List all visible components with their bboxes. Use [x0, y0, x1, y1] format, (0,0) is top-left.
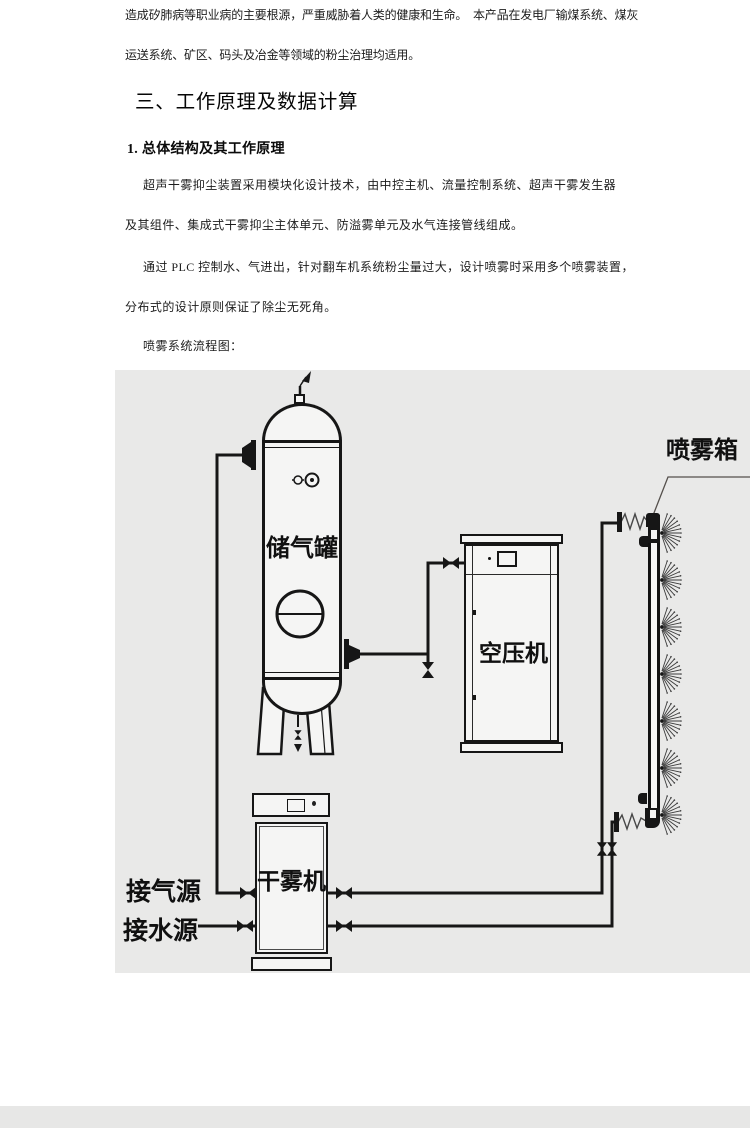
paragraph1-line-2: 及其组件、集成式干雾抑尘主体单元、防溢雾单元及水气连接管线组成。	[125, 216, 523, 233]
tank-weld-line-top	[265, 447, 339, 448]
intro-line-2: 运送系统、矿区、码头及冶金等领域的粉尘治理均适用。	[125, 46, 420, 63]
safety-valve-icon	[295, 371, 311, 403]
section-heading: 三、工作原理及数据计算	[135, 85, 358, 114]
mist-machine-display	[287, 799, 305, 812]
paragraph2-line-1: 通过 PLC 控制水、气进出，针对翻车机系统粉尘量过大，设计喷雾时采用多个喷雾装…	[143, 258, 634, 275]
compressor-divider-line	[466, 574, 557, 575]
spray-bar-bottom-fitting-window	[650, 810, 656, 818]
page-bottom-strip	[0, 1106, 750, 1128]
compressor-indicator-dot	[488, 557, 491, 560]
document-page: { "document": { "intro_lines": [ "造成矽肺病等…	[0, 0, 750, 1128]
intro-line-1: 造成矽肺病等职业病的主要根源，严重威胁着人类的健康和生命。 本产品在发电厂输煤系…	[125, 6, 638, 23]
spray-bar-top-collar-window	[651, 530, 657, 539]
spray-bar	[648, 515, 660, 810]
spray-bar-side-port-bottom	[638, 793, 647, 804]
water-source-label: 接水源	[123, 911, 198, 947]
gas-source-label: 接气源	[126, 872, 201, 908]
valve-gas-outlet	[336, 887, 352, 899]
compressor-cap-bottom	[460, 742, 563, 753]
valve-tank-drain	[294, 730, 301, 740]
paragraph2-line-2: 分布式的设计原则保证了除尘无死角。	[125, 298, 337, 315]
compressor-body: 空压机	[464, 544, 559, 742]
tank-weld-line-bottom	[265, 672, 339, 673]
spray-box-label: 喷雾箱	[666, 430, 750, 465]
compressor-hinge-top	[473, 610, 476, 615]
pipe-tank-to-compressor	[360, 563, 464, 662]
mist-machine-top-panel	[252, 793, 330, 817]
figure-caption: 喷雾系统流程图：	[143, 337, 243, 354]
valve-water-inlet	[237, 920, 253, 932]
valve-gas-inlet	[240, 887, 256, 899]
spray-system-flow-diagram: 储气罐 空压机 干雾机	[115, 370, 750, 973]
valve-water-outlet	[336, 920, 352, 932]
storage-tank-label: 储气罐	[262, 528, 342, 563]
mist-machine-body: 干雾机	[255, 822, 328, 954]
subsection-heading: 1. 总体结构及其工作原理	[127, 138, 285, 158]
valve-drain-junction	[422, 662, 434, 678]
mist-machine-indicator-dot	[312, 801, 316, 806]
mist-machine-label: 干雾机	[257, 862, 325, 896]
valve-riser-water	[607, 842, 617, 856]
flex-hose-bottom	[618, 814, 646, 829]
flex-hose-top	[621, 514, 648, 529]
compressor-display	[497, 551, 517, 567]
spray-bar-top-fitting	[646, 513, 660, 527]
spray-bar-side-port-top	[639, 536, 648, 547]
paragraph1-line-1: 超声干雾抑尘装置采用模块化设计技术，由中控主机、流量控制系统、超声干雾发生器	[143, 176, 616, 193]
compressor-label: 空压机	[466, 634, 561, 668]
compressor-hinge-bottom	[473, 695, 476, 700]
spray-nozzle-fans	[660, 513, 682, 835]
compressor-cap-top	[460, 534, 563, 544]
spray-box-leader-line	[652, 477, 750, 518]
mist-machine-base	[251, 957, 332, 971]
valve-compressor-inlet	[443, 557, 459, 569]
